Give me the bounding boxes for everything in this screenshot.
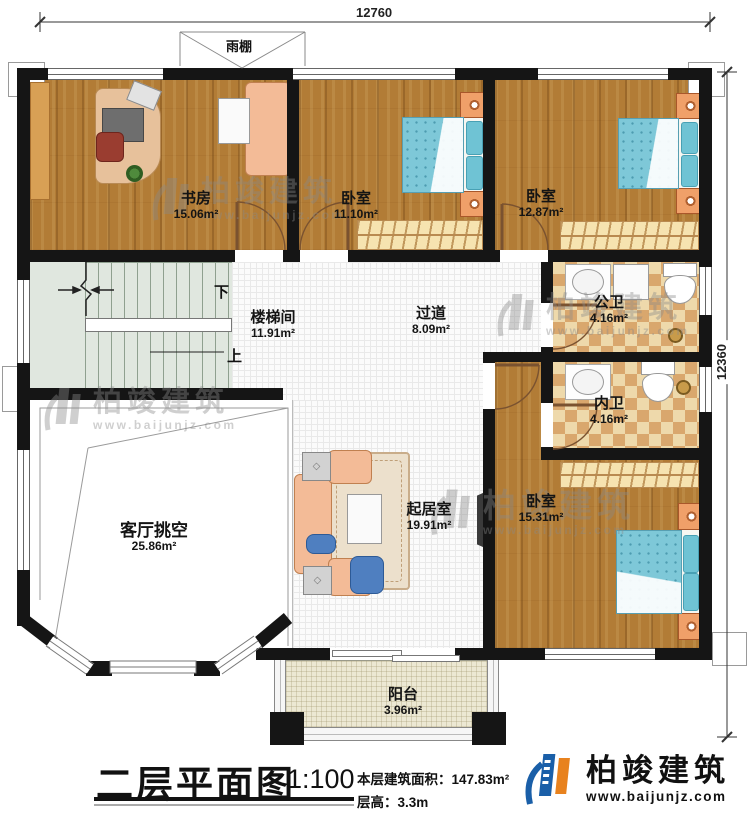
title-underline xyxy=(94,797,354,801)
pillow xyxy=(681,122,698,154)
pier-outline-bottom-right xyxy=(712,632,747,666)
public-bath-door-opening xyxy=(541,303,553,347)
wall-bedroom-row xyxy=(17,250,712,262)
stair-down-label: 下 xyxy=(214,281,229,302)
wall-bath-divider xyxy=(483,352,712,362)
room-label-ensuite-bath: 内卫 4.16m² xyxy=(590,396,628,426)
plant xyxy=(126,165,143,182)
wall-bedrooms-divider xyxy=(483,80,495,250)
pillow xyxy=(683,535,699,573)
person-figure xyxy=(306,534,336,554)
coffee-table xyxy=(347,494,382,544)
floor-area-label: 本层建筑面积： xyxy=(357,772,452,787)
wardrobe xyxy=(357,220,483,250)
ensuite-bath-door-opening xyxy=(541,403,553,447)
study-sofa xyxy=(245,82,291,176)
shower-head xyxy=(668,328,683,343)
window-left-void xyxy=(17,450,30,570)
wall-stair-bottom xyxy=(17,388,283,400)
wardrobe xyxy=(560,221,699,250)
bed xyxy=(616,530,682,614)
room-label-study: 书房 15.06m² xyxy=(174,191,219,221)
pillow xyxy=(466,121,483,155)
balcony-pier-right xyxy=(472,712,506,745)
floor-area-value: 147.83m² xyxy=(452,772,510,787)
company-website: www.baijunjz.com xyxy=(586,789,730,804)
floor-plan-canvas: ◇ ◇ xyxy=(0,0,750,822)
company-logo-icon xyxy=(522,748,578,810)
floor-area-line: 本层建筑面积：147.83m² xyxy=(357,768,509,788)
window-right-public-bath xyxy=(699,267,712,315)
pillow xyxy=(681,155,698,187)
pillow xyxy=(466,156,483,190)
bedroom-br-door-opening xyxy=(483,363,495,409)
person-figure xyxy=(350,556,384,594)
sofa-long xyxy=(294,474,332,574)
canopy-label: 雨棚 xyxy=(224,36,254,55)
balcony-sliding-door-panel xyxy=(392,655,460,662)
dimension-right-label: 12360 xyxy=(714,340,729,384)
room-label-corridor: 过道 8.09m² xyxy=(412,306,450,336)
study-side-table xyxy=(218,98,250,144)
floor-height-label: 层高： xyxy=(357,795,398,810)
stair-up-label: 上 xyxy=(227,345,242,366)
balcony-pier-left xyxy=(270,712,304,745)
bed xyxy=(618,118,679,189)
floor-height-value: 3.3m xyxy=(398,795,429,810)
bed xyxy=(402,117,464,193)
wall-study-bedroom xyxy=(287,80,299,250)
room-label-bedroom-bottom-right: 卧室 15.31m² xyxy=(519,494,564,524)
study-door-opening xyxy=(235,250,283,262)
end-table: ◇ xyxy=(302,452,331,481)
pillow xyxy=(683,573,699,611)
window-top-bedroom-middle xyxy=(293,68,455,80)
window-right-ensuite-bath xyxy=(699,367,712,412)
floor-height-line: 层高：3.3m xyxy=(357,791,428,811)
company-name: 柏竣建筑 xyxy=(586,755,730,786)
room-label-living-room: 起居室 19.91m² xyxy=(406,502,451,532)
room-label-bedroom-top-right: 卧室 12.87m² xyxy=(519,189,564,219)
room-label-bedroom-top-middle: 卧室 11.10m² xyxy=(334,191,378,221)
room-label-balcony: 阳台 3.96m² xyxy=(384,687,422,717)
study-bookshelf xyxy=(30,82,50,200)
wall-bath-bottom xyxy=(541,448,712,460)
end-table: ◇ xyxy=(303,566,332,595)
room-label-stairwell: 楼梯间 11.91m² xyxy=(250,310,295,340)
window-bottom-bedroom xyxy=(545,648,655,660)
window-top-bedroom-right xyxy=(538,68,668,80)
wall-right xyxy=(699,68,712,660)
title-underline-thin xyxy=(94,804,354,806)
bedroom-tm-door-opening xyxy=(300,250,348,262)
company-logo: 柏竣建筑 www.baijunjz.com xyxy=(522,748,730,810)
dimension-top-label: 12760 xyxy=(352,5,396,20)
window-top-study xyxy=(48,68,163,80)
armchair xyxy=(328,450,372,484)
stair-handrail xyxy=(85,318,232,332)
company-logo-texts: 柏竣建筑 www.baijunjz.com xyxy=(586,755,730,804)
shower-head xyxy=(676,380,691,395)
balcony-rail-front xyxy=(274,727,499,741)
plan-scale: 1:100 xyxy=(287,764,355,795)
room-label-public-bath: 公卫 4.16m² xyxy=(590,295,628,325)
room-label-living-void: 客厅挑空 25.86m² xyxy=(120,521,188,553)
desk-chair xyxy=(96,132,124,162)
window-left-stairwell xyxy=(17,280,30,363)
wardrobe xyxy=(560,462,699,488)
bedroom-tr-door-opening xyxy=(500,250,548,262)
